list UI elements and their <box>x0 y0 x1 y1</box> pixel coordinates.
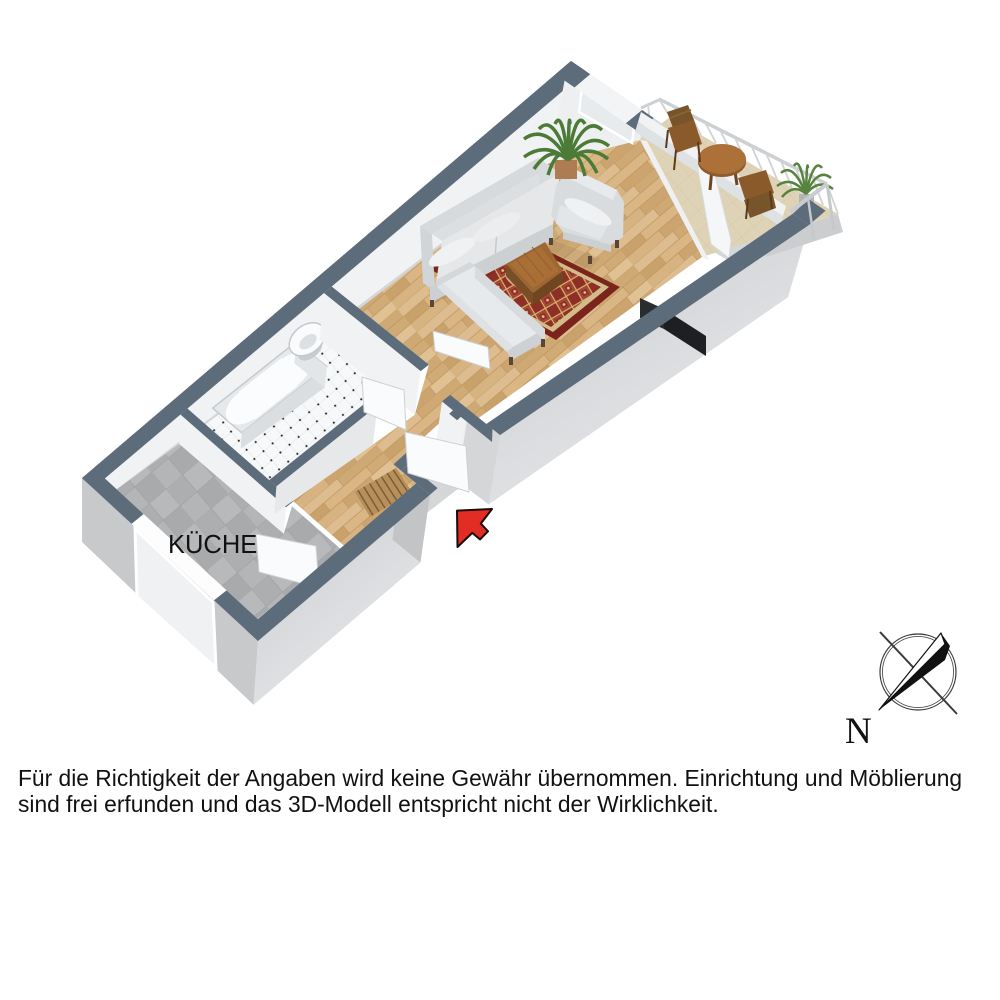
svg-text:sind frei erfunden und das 3D-: sind frei erfunden und das 3D-Modell ent… <box>18 791 719 817</box>
svg-text:KÜCHE: KÜCHE <box>168 531 257 559</box>
svg-text:N: N <box>845 711 872 752</box>
svg-text:Für die Richtigkeit der Angabe: Für die Richtigkeit der Angaben wird kei… <box>18 765 962 791</box>
